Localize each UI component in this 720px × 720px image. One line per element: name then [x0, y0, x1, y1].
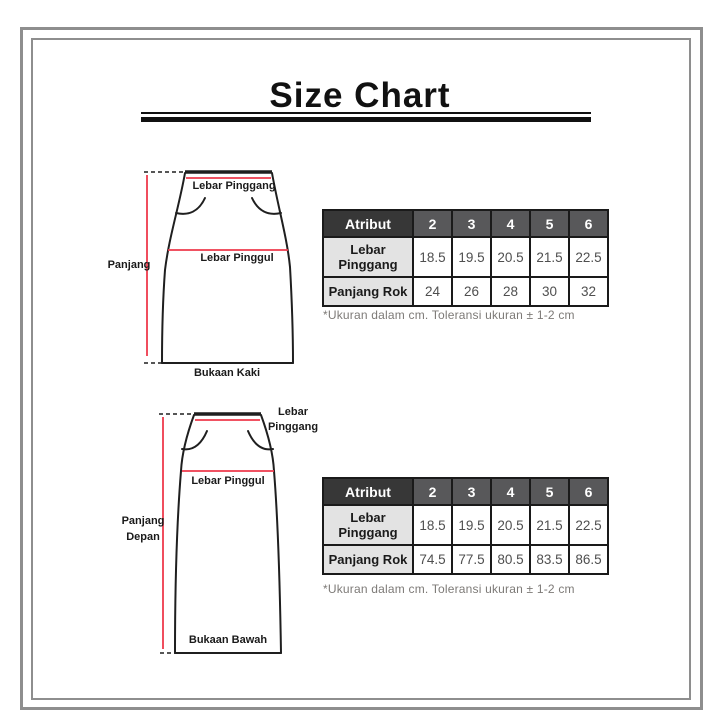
pocket-curve-left [176, 198, 205, 214]
value-cell: 18.5 [413, 237, 452, 277]
short-skirt-diagram [105, 162, 320, 387]
hip-label: Lebar Pinggul [180, 474, 276, 489]
size-table-long-skirt: Atribut 2 3 4 5 6 Lebar Pinggang 18.5 19… [322, 477, 609, 575]
value-cell: 30 [530, 277, 569, 306]
hem-label: Bukaan Bawah [180, 633, 276, 648]
value-cell: 32 [569, 277, 608, 306]
header-cell-size: 5 [530, 478, 569, 505]
waist-label: Lebar Pinggang [186, 179, 282, 194]
value-cell: 21.5 [530, 505, 569, 545]
value-cell: 77.5 [452, 545, 491, 574]
length-label: Panjang [107, 258, 151, 273]
size-note: *Ukuran dalam cm. Toleransi ukuran ± 1-2… [323, 308, 575, 322]
value-cell: 83.5 [530, 545, 569, 574]
value-cell: 24 [413, 277, 452, 306]
hip-label: Lebar Pinggul [189, 251, 285, 266]
table-header-row: Atribut 2 3 4 5 6 [323, 210, 608, 237]
hem-label: Bukaan Kaki [172, 366, 282, 381]
header-cell-size: 4 [491, 210, 530, 237]
size-chart-page: Size Chart Lebar Pinggang Lebar Pinggul … [0, 0, 720, 720]
skirt-left-seam [175, 415, 194, 653]
value-cell: 22.5 [569, 505, 608, 545]
table-row: Lebar Pinggang 18.5 19.5 20.5 21.5 22.5 [323, 237, 608, 277]
header-cell-atribut: Atribut [323, 478, 413, 505]
value-cell: 19.5 [452, 237, 491, 277]
divider-thick-rule [141, 117, 591, 122]
length-label: Panjang Depan [117, 513, 169, 545]
title-divider [141, 112, 591, 122]
row-label-cell: Lebar Pinggang [323, 237, 413, 277]
header-cell-size: 6 [569, 478, 608, 505]
skirt-right-seam [261, 415, 281, 653]
value-cell: 20.5 [491, 505, 530, 545]
size-note: *Ukuran dalam cm. Toleransi ukuran ± 1-2… [323, 582, 575, 596]
value-cell: 86.5 [569, 545, 608, 574]
table-header-row: Atribut 2 3 4 5 6 [323, 478, 608, 505]
header-cell-size: 5 [530, 210, 569, 237]
row-label-cell: Panjang Rok [323, 277, 413, 306]
header-cell-size: 3 [452, 210, 491, 237]
header-cell-size: 3 [452, 478, 491, 505]
value-cell: 18.5 [413, 505, 452, 545]
row-label-cell: Panjang Rok [323, 545, 413, 574]
size-table-short-skirt: Atribut 2 3 4 5 6 Lebar Pinggang 18.5 19… [322, 209, 609, 307]
page-title: Size Chart [0, 76, 720, 116]
header-cell-size: 2 [413, 478, 452, 505]
table-row: Panjang Rok 24 26 28 30 32 [323, 277, 608, 306]
divider-thin-rule [141, 112, 591, 114]
value-cell: 74.5 [413, 545, 452, 574]
row-label-cell: Lebar Pinggang [323, 505, 413, 545]
length-label-line1: Panjang [117, 513, 169, 529]
header-cell-size: 6 [569, 210, 608, 237]
skirt-right-seam [272, 173, 293, 363]
value-cell: 22.5 [569, 237, 608, 277]
header-cell-atribut: Atribut [323, 210, 413, 237]
skirt-left-seam [162, 173, 185, 363]
value-cell: 21.5 [530, 237, 569, 277]
table-row: Panjang Rok 74.5 77.5 80.5 83.5 86.5 [323, 545, 608, 574]
header-cell-size: 2 [413, 210, 452, 237]
waist-label: Lebar Pinggang [262, 405, 324, 435]
waist-label-line1: Lebar [262, 405, 324, 420]
waist-label-line2: Pinggang [262, 420, 324, 435]
header-cell-size: 4 [491, 478, 530, 505]
value-cell: 19.5 [452, 505, 491, 545]
length-label-line2: Depan [117, 529, 169, 545]
value-cell: 80.5 [491, 545, 530, 574]
value-cell: 20.5 [491, 237, 530, 277]
value-cell: 28 [491, 277, 530, 306]
table-row: Lebar Pinggang 18.5 19.5 20.5 21.5 22.5 [323, 505, 608, 545]
value-cell: 26 [452, 277, 491, 306]
